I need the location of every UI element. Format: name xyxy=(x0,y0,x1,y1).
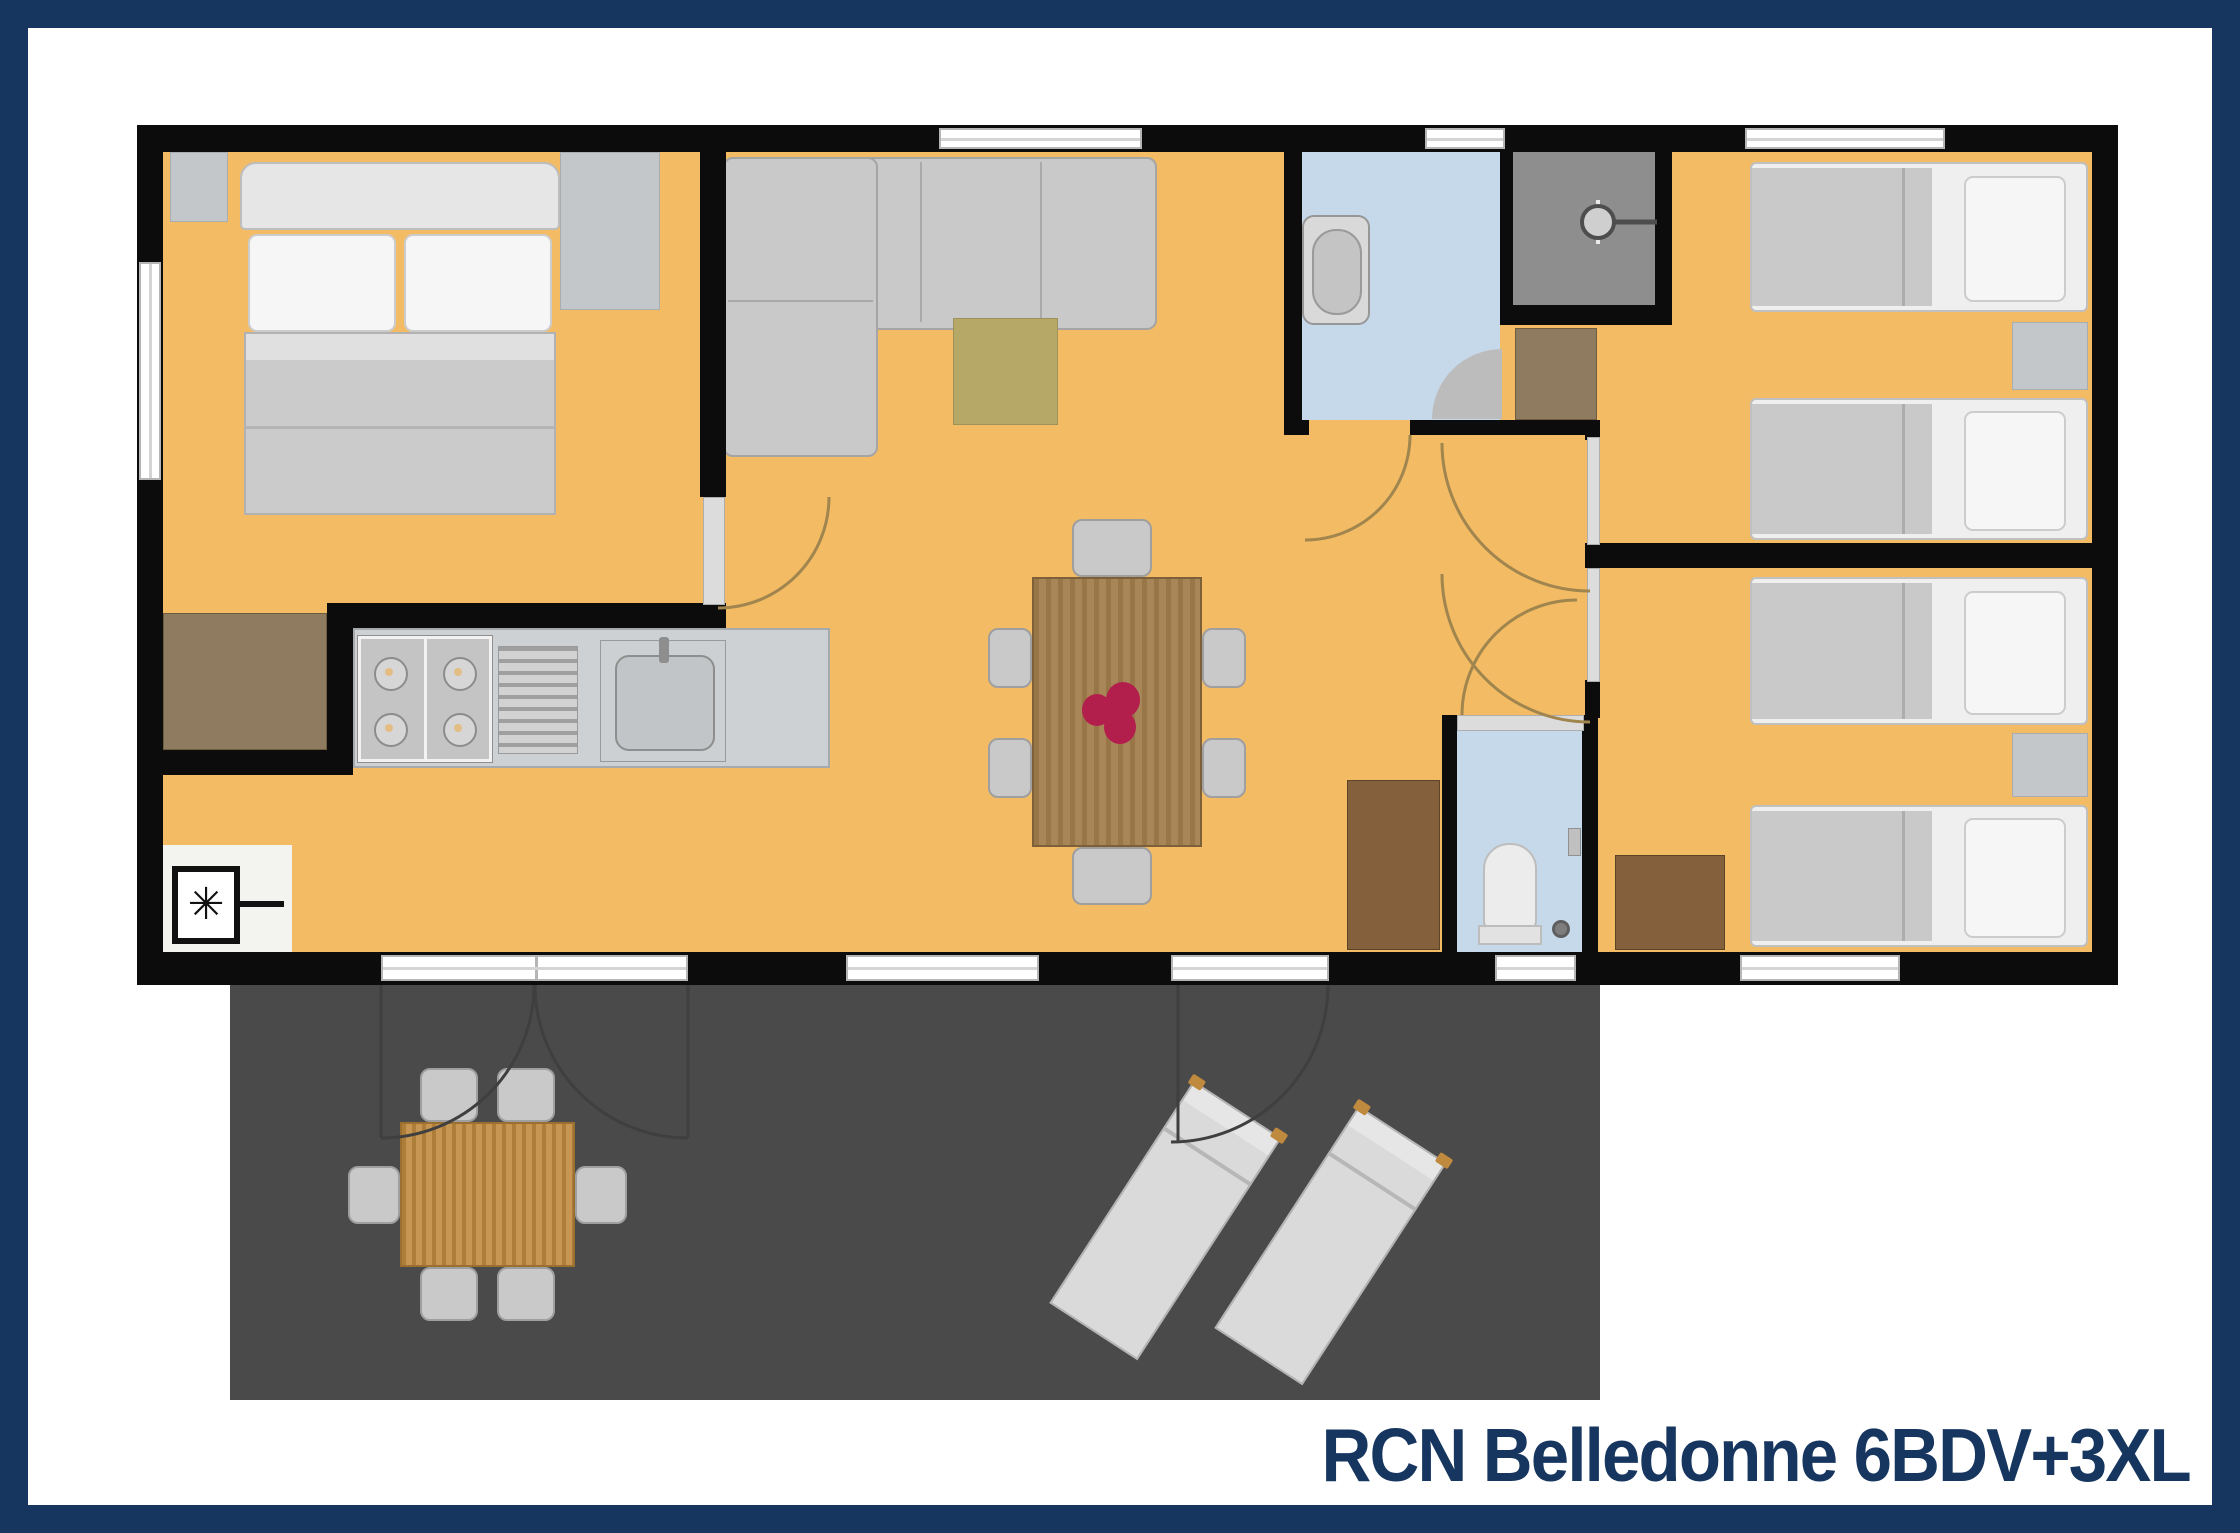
wall xyxy=(1284,125,1302,435)
wall xyxy=(327,603,726,628)
terrace-chair xyxy=(497,1267,555,1321)
terrace-door xyxy=(1171,955,1329,981)
floorplan-page: ✳ xyxy=(0,0,2240,1533)
freezer-appliance: ✳ xyxy=(172,866,240,944)
terrace-chair xyxy=(575,1166,627,1224)
double-bed xyxy=(240,162,560,515)
wall xyxy=(1585,680,1600,718)
terrace-double-door xyxy=(381,955,688,981)
floor-drain xyxy=(1552,920,1570,938)
headboard xyxy=(240,162,560,230)
window xyxy=(1495,955,1576,981)
nightstand-bedroom3 xyxy=(2012,733,2088,797)
window xyxy=(139,262,161,480)
dining-chair xyxy=(1072,519,1152,577)
living-rug xyxy=(953,318,1058,425)
terrace-chair xyxy=(348,1166,400,1224)
window xyxy=(1425,128,1505,149)
dining-chair xyxy=(988,628,1032,688)
sofa-cushion-line xyxy=(1040,162,1042,322)
wall xyxy=(137,125,163,985)
wall xyxy=(1585,543,2092,568)
kitchen-sink xyxy=(600,640,726,762)
wall xyxy=(1500,305,1672,325)
wall xyxy=(1442,715,1457,952)
terrace-chair xyxy=(420,1068,478,1122)
stove xyxy=(358,636,492,762)
faucet-icon xyxy=(659,637,669,663)
pillow xyxy=(248,234,396,332)
single-bed-1 xyxy=(1750,162,2088,312)
bed-blanket xyxy=(244,332,556,515)
sideboard xyxy=(1347,780,1440,950)
door-bedroom1 xyxy=(703,497,725,605)
door-wc xyxy=(1457,715,1584,731)
flower-decoration xyxy=(1082,682,1142,744)
wall xyxy=(1655,125,1672,325)
window xyxy=(846,955,1039,981)
sofa-cushion-line xyxy=(728,300,873,302)
dining-chair xyxy=(1202,738,1246,798)
window xyxy=(1740,955,1900,981)
nightstand-bedroom2 xyxy=(2012,322,2088,390)
appliance-asterisk-icon: ✳ xyxy=(188,883,225,927)
wall xyxy=(137,750,353,775)
terrace-chair xyxy=(420,1267,478,1321)
wall xyxy=(1284,420,1309,435)
shower-floor xyxy=(1513,152,1655,305)
single-bed-2 xyxy=(1750,398,2088,540)
door-bedroom3 xyxy=(1587,568,1600,682)
wall xyxy=(2092,125,2118,985)
dresser-bedroom1 xyxy=(560,152,660,310)
dresser-hall xyxy=(1515,328,1597,420)
window xyxy=(939,128,1142,149)
wall xyxy=(1410,420,1600,435)
wardrobe-bedroom1 xyxy=(163,613,327,750)
bathtub xyxy=(1302,215,1370,325)
wall xyxy=(1582,715,1598,952)
dining-chair xyxy=(1072,847,1152,905)
wall xyxy=(700,125,726,497)
single-bed-3 xyxy=(1750,577,2088,725)
dining-chair xyxy=(1202,628,1246,688)
plan-title: RCN Belledonne 6BDV+3XL xyxy=(1322,1412,2190,1498)
window xyxy=(1745,128,1945,149)
single-bed-4 xyxy=(1750,805,2088,947)
door-bedroom2 xyxy=(1587,437,1600,545)
nightstand-left xyxy=(170,152,228,222)
corner-sofa-left xyxy=(723,157,878,457)
appliance-pipe xyxy=(240,901,284,907)
pillow xyxy=(404,234,552,332)
dining-chair xyxy=(988,738,1032,798)
terrace-table xyxy=(400,1122,575,1267)
wardrobe-bedroom3 xyxy=(1615,855,1725,950)
wall xyxy=(1500,152,1513,310)
toilet xyxy=(1478,843,1542,947)
sofa-cushion-line xyxy=(920,162,922,322)
terrace-chair xyxy=(497,1068,555,1122)
wc-handle xyxy=(1568,828,1581,856)
drainer xyxy=(498,646,578,754)
